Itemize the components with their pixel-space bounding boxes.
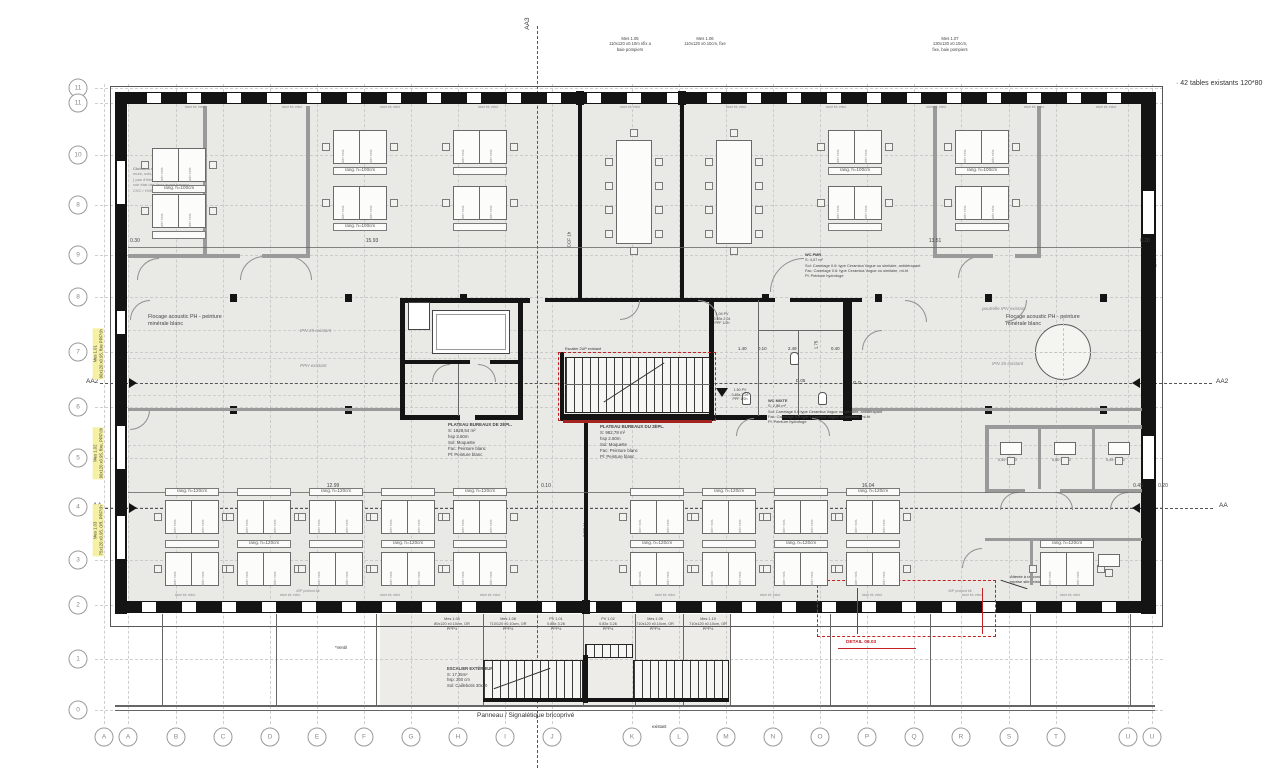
chair-icon-r3 [655,230,663,238]
room-block-wc-mixte: WC MIXTES: 2,86 m²Sol: Carrelage 0.6 typ… [768,398,882,424]
desk-label-1: table exist. [389,519,393,534]
store-label-bottom-2: store int. exist. [380,594,401,598]
chair-icon-l [322,199,330,207]
grid-bubble-col-3: C [214,728,233,747]
small-desk-chair-3 [1105,569,1113,577]
rang-label: rang. h=120cm [177,488,207,493]
desk-cluster-top-0: table exist.table exist.rang. h=100cm [333,130,387,176]
desk-label-1: table exist. [638,519,642,534]
desk-cluster-top-9: table exist.table exist. [152,194,206,240]
stair-rail [565,384,710,385]
chair-icon-l [442,199,450,207]
chair-icon-l [944,143,952,151]
room-br2-wall-m [1030,538,1033,585]
store-label-bottom-3: store int. exist. [480,594,501,598]
annex-partition-1 [276,614,277,705]
chair-icon-b [630,247,638,255]
annex-bottom-line2 [115,710,1155,711]
dim-top-1: 15.93 [366,238,379,245]
desk-label-1: table exist. [245,519,249,534]
rang-label: rang. h=100cm [164,185,194,190]
desk-label-2: table exist. [882,519,886,534]
chair-icon-l [154,513,162,521]
chair-icon-r [390,143,398,151]
rang-label: rang. h=120cm [714,488,744,493]
chair-icon-l [141,207,149,215]
desk-cluster-b2-3: table exist.table exist.rang. h=120cm [381,552,435,598]
desk-label-1: table exist. [173,519,177,534]
desk-label-1: table exist. [160,167,164,182]
store-label-bottom-4: store int. exist. [655,594,676,598]
chair-icon-r0 [655,158,663,166]
chair-icon-r [510,143,518,151]
chair-icon-l [442,565,450,573]
column-mid-0 [230,294,237,302]
desk-divider [872,500,873,534]
store-label-bottom-1: store int. exist. [280,594,301,598]
desk-cluster-top-6: table exist.table exist.rang. h=100cm [955,130,1009,176]
chair-icon-l [944,199,952,207]
elevator-shaft-box [408,302,430,330]
desk-label-1: table exist. [173,571,177,586]
desk-label-1: table exist. [461,571,465,586]
wc-partition-3 [758,330,845,331]
office-tl-wall-4 [262,254,310,258]
chair-icon-l [442,143,450,151]
wall-top-hatched [120,92,1152,104]
core-wall-v-mid [518,360,523,420]
store-label-top-9: store int. exist. [1096,106,1117,110]
grid-bubble-col-20: T [1047,728,1066,747]
grid-bubble-col-2: B [167,728,186,747]
chair-icon-l [691,513,699,521]
grid-bubble-row-6: 7 [69,343,88,362]
rang-bar [453,223,507,231]
annex-partition-11 [1130,614,1131,705]
store-label-bottom-8: store int. exist. [1060,594,1081,598]
office-tl-wall-3 [128,254,240,258]
office-tr-wall-2 [1037,106,1041,258]
ext-stair-edge [483,698,729,702]
desk-divider [656,552,657,586]
chair-icon-r [510,513,518,521]
measure-top-0: Mes 1.05110x120 x0.10m nfix abaie pompie… [609,36,651,52]
desk-divider [800,552,801,586]
desk-divider [191,552,192,586]
desk-label-2: table exist. [489,571,493,586]
chair-icon-r2 [755,206,763,214]
stair-direction-arrow [716,388,728,397]
rang-label: rang. h=100cm [840,167,870,172]
desk-cluster-top-7: table exist.table exist. [955,186,1009,232]
column-mid-5 [985,294,992,302]
desk-label-1: table exist. [341,149,345,164]
desk-divider [800,500,801,534]
desk-label-2: table exist. [345,519,349,534]
desk-label-2: table exist. [489,149,493,164]
desk-label-2: table exist. [489,519,493,534]
rang-bar [774,488,828,496]
desk-label-1: table exist. [782,519,786,534]
measure-left-2: Mes 1.0375x120 x0.95, OR, PPF½h [93,504,104,556]
desk-divider [854,186,855,220]
chair-icon-r3 [755,230,763,238]
line-2: PPF½ [434,627,470,632]
line-2: PPF½ [599,627,617,632]
rang-bar [165,540,219,548]
room-block-escalier-ext-line-3: Sol: Caillebotis 30x30 [447,683,493,689]
column-mid-1 [345,294,352,302]
chair-icon-l [817,143,825,151]
small-desk-3 [1098,554,1120,567]
desk-label-2: table exist. [345,571,349,586]
measure-core-1: 1.50 PV0.85x 3.26PPF 1/2h [732,388,749,402]
desk-label-1: table exist. [461,149,465,164]
dim-bottom-3: 0.45 [1133,483,1143,490]
column-mid-6 [1100,294,1107,302]
small-desk-chair-0 [1007,457,1015,465]
desk-label-1: table exist. [836,149,840,164]
grid-bubble-col-4: D [261,728,280,747]
chair-icon-t [730,129,738,137]
grid-bubble-row-10: 3 [69,551,88,570]
pilaster-bottom [582,600,590,614]
store-label-top-1: store int. exist. [282,106,303,110]
chair-icon-l [619,565,627,573]
rang-bar [309,540,363,548]
beam-left [128,408,400,411]
firewall-top-1 [578,104,582,300]
desk-label-2: table exist. [864,205,868,220]
measure-top-2: Mes 1.07130x130 x0.10cm,fixe, baie pompi… [932,36,967,52]
line-2: PPF½ [689,627,727,632]
small-desk-2 [1108,442,1130,455]
chair-icon-r0 [755,158,763,166]
chair-icon-l [1029,565,1037,573]
chair-icon-r [885,199,893,207]
desk-cluster-top-1: table exist.table exist. [453,130,507,176]
chair-icon-l [817,199,825,207]
desk-label-1: table exist. [461,205,465,220]
line-0: 1.50 PV [732,388,749,393]
desk-cluster-top-5: table exist.table exist. [828,186,882,232]
desk-label-2: table exist. [666,519,670,534]
measure-top-1: Mes 1.06110x120 x0.10cm, fixe [684,36,726,47]
grid-bubble-row-2: 10 [69,146,88,165]
dim-top-3: 0.20 [1140,238,1150,245]
chair-icon-l [370,565,378,573]
office-tr-wall-4 [1015,254,1041,258]
stair-red-edge [563,420,712,423]
desk-label-1: table exist. [317,571,321,586]
desk-divider [728,552,729,586]
desk-label-2: table exist. [666,571,670,586]
rang-bar [955,223,1009,231]
desk-label-1: table exist. [389,571,393,586]
ext-stair-treads-1 [483,660,583,700]
rang-label: rang. h=120cm [1052,540,1082,545]
desk-label-2: table exist. [1076,571,1080,586]
desk-label-2: table exist. [991,205,995,220]
measure-bottom-4: Mes 1.09710x120 x0.10cm, ORPPF½ [636,617,674,632]
desk-divider [335,500,336,534]
detail-0903-box [817,580,996,637]
office-tr-wall-1 [933,106,937,258]
detail-0903-underline [838,648,916,649]
chair-icon-r [510,199,518,207]
rang-bar [702,540,756,548]
grid-bubble-col-17: Q [905,728,924,747]
chair-icon-r [903,565,911,573]
window-left-2 [116,425,126,470]
grid-bubble-col-13: M [717,728,736,747]
grid-bubble-col-16: P [858,728,877,747]
chair-icon-l [154,565,162,573]
desk-divider [191,500,192,534]
store-label-bottom-7: store int. exist. [962,594,983,598]
meeting-table-2 [716,140,752,244]
store-label-top-0: store int. exist. [185,106,206,110]
meeting-table-1 [616,140,652,244]
line-2: fixe, baie pompiers [932,47,967,52]
desk-label-2: table exist. [273,571,277,586]
chair-icon-r [1012,199,1020,207]
firewall-bottom [584,420,588,601]
grid-bubble-col-15: O [811,728,830,747]
column-mid-4 [875,294,882,302]
line-2: PPF½ [636,627,674,632]
room-br-wall-m1 [1038,425,1041,489]
room-block-plateau-right: PLATEAU BUREAUX DU 2ÈPL.S: 982,78 m²hsp … [600,424,664,460]
annex-partition-0 [162,614,163,705]
store-label-bottom-0: store int. exist. [175,594,196,598]
chair-icon-l2 [605,206,613,214]
measure-bottom-0: Mes 1.0480x120 x0.10cm, ORPPF½ [434,617,470,632]
grid-bubble-col-5: E [308,728,327,747]
desk-divider [335,552,336,586]
room-block-plateau-left-line-5: Pl: Peinture blanc [448,452,512,458]
chair-icon-l [691,565,699,573]
grid-bubble-row-9: 4 [69,498,88,517]
desk-label-1: table exist. [638,571,642,586]
rang-bar [453,167,507,175]
dim-bottom-4: 0.20 [1158,483,1168,490]
grid-bubble-col-0: A [95,728,114,747]
store-label-top-4: store int. exist. [620,106,641,110]
desk-label-2: table exist. [810,571,814,586]
rang-bar [846,540,900,548]
desk-divider [872,552,873,586]
room-block-wc-mixte-line-4: Pl: Peinture hydrofuge [768,419,882,424]
desk-label-2: table exist. [188,167,192,182]
desk-label-2: table exist. [991,149,995,164]
desk-label-2: table exist. [188,213,192,228]
chair-icon-r2 [655,206,663,214]
desk-divider [479,552,480,586]
window-left-0 [116,160,126,205]
wc-partition-1 [758,300,759,416]
desk-divider [407,552,408,586]
measure-bottom-2: PV 1.010.88x 3.26PPF½ [547,617,565,632]
core-wall-v-left [400,298,405,420]
chair-icon-l [763,513,771,521]
grid-bubble-col-14: N [764,728,783,747]
window-right-0 [1142,190,1155,235]
grid-bubble-col-1: A [119,728,138,747]
chair-icon-l [226,565,234,573]
stair-treads-main [565,357,710,413]
desk-divider [178,194,179,228]
chair-icon-l3 [705,230,713,238]
chair-icon-l2 [705,206,713,214]
elevator-car-inner [436,314,506,350]
desk-label-2: table exist. [738,519,742,534]
store-label-bottom-5: store int. exist. [760,594,781,598]
chair-icon-l [442,513,450,521]
chair-icon-l1 [605,182,613,190]
rang-label: rang. h=100cm [345,223,375,228]
line-1: 110x120 x0.10cm, fixe [684,41,726,46]
wall-right [1141,92,1156,614]
measure-bottom-5: Mes 1.10710x120 x0.10cm, ORPPF½ [689,617,727,632]
desk-label-1: table exist. [710,519,714,534]
grid-bubble-col-18: R [952,728,971,747]
chair-icon-t [630,129,638,137]
grid-bubble-col-6: F [355,728,374,747]
desk-label-1: table exist. [160,213,164,228]
desk-divider [479,186,480,220]
desk-divider [479,130,480,164]
store-label-bottom-6: store int. exist. [862,594,883,598]
line-2: PPF 1/2h [714,321,731,326]
desk-label-1: table exist. [836,205,840,220]
grid-bubble-row-11: 2 [69,596,88,615]
pilaster-top-1 [678,91,686,105]
rang-label: rang. h=120cm [858,488,888,493]
desk-cluster-b2-7: table exist.table exist.rang. h=120cm [774,552,828,598]
room-block-plateau-left: PLATEAU BUREAUX DE 2ÈPL.S: 1828,54 m²hsp… [448,422,512,458]
plan-content: 0,49 x 2,200,80 x 2,200,49 x 2,200.3015.… [0,0,1280,772]
chair-icon-l [763,565,771,573]
desk-cluster-top-8: table exist.table exist.rang. h=100cm [152,148,206,194]
desk-label-1: table exist. [341,205,345,220]
chair-icon-l0 [605,158,613,166]
chair-icon-r [390,199,398,207]
grid-bubble-col-7: G [402,728,421,747]
desk-label-2: table exist. [864,149,868,164]
line-2: PPF½ [490,627,527,632]
desk-divider [407,500,408,534]
store-label-top-8: store int. exist. [1024,106,1045,110]
grid-bubble-row-5: 8 [69,288,88,307]
desk-label-2: table exist. [369,149,373,164]
window-left-3 [116,515,126,560]
elevator-wall-right [518,298,523,364]
desk-divider [479,500,480,534]
room-br-wall-top [985,425,1142,429]
store-label-top-2: store int. exist. [380,106,401,110]
room-br-wall-m2 [1092,425,1095,489]
window-right-1 [1142,435,1155,480]
desk-divider [981,130,982,164]
column-mid-3 [762,294,769,302]
chair-icon-l [370,513,378,521]
chair-icon-r [1012,143,1020,151]
ext-stair-wall [583,655,588,703]
rang-label: rang. h=100cm [345,167,375,172]
chair-icon-l0 [705,158,713,166]
chair-icon-l [619,513,627,521]
small-desk-0 [1000,442,1022,455]
room-block-wc-pmr: WC PMRS: 4,07 m²Sol: Carrelage 0.6: type… [805,252,920,278]
desk-divider [981,186,982,220]
store-label-top-6: store int. exist. [826,106,847,110]
desk-cluster-b2-4: table exist.table exist. [453,552,507,598]
desk-label-2: table exist. [273,519,277,534]
dim-top-0: 0.30 [130,238,140,245]
firewall-top-2 [680,104,684,300]
floor-plan-sheet: AA3 AA2 AA2 AA AA · 42 tables existants … [0,0,1280,772]
desk-label-1: table exist. [317,519,321,534]
desk-cluster-b2-5: table exist.table exist.rang. h=120cm [630,552,684,598]
toilet-icon-2 [790,352,799,365]
room-br-wall-l [985,425,989,493]
small-desk-chair-2 [1115,457,1123,465]
desk-cluster-b2-6: table exist.table exist. [702,552,756,598]
grid-bubble-row-12: 1 [69,650,88,669]
room-block-plateau-right-line-5: Pl: Peinture blanc [600,454,664,460]
desk-label-1: table exist. [963,205,967,220]
desk-label-1: table exist. [963,149,967,164]
rang-bar [381,488,435,496]
desk-divider [178,148,179,182]
chair-icon-l [835,565,843,573]
grid-bubble-row-1: 11 [69,94,88,113]
chair-icon-l [298,513,306,521]
desk-label-2: table exist. [417,519,421,534]
desk-cluster-b2-1: table exist.table exist.rang. h=120cm [237,552,291,598]
annex-partition-9 [930,614,931,705]
grid-bubble-col-19: S [1000,728,1019,747]
chair-icon-r [209,161,217,169]
grid-bubble-row-7: 6 [69,398,88,417]
chair-icon-l [226,513,234,521]
line-2: PPF 1/2h [732,397,749,402]
annex-partition-8 [830,614,831,705]
desk-label-1: table exist. [461,519,465,534]
beam-right [852,408,1142,411]
desk-divider [1066,552,1067,586]
desk-label-1: table exist. [710,571,714,586]
chair-icon-l [298,565,306,573]
core-wall-bottom-0 [400,415,460,420]
desk-label-2: table exist. [882,571,886,586]
desk-cluster-top-2: table exist.table exist.rang. h=100cm [333,186,387,232]
desk-label-2: table exist. [738,571,742,586]
rang-label: rang. h=120cm [321,488,351,493]
grid-bubble-col-21: U [1119,728,1138,747]
desk-label-1: table exist. [854,519,858,534]
annex-bottom-line [115,705,1155,707]
measure-core-0: 1.04 PV0.93x 2.04PPF 1/2h [714,312,731,326]
desk-label-2: table exist. [201,571,205,586]
chair-icon-r [209,207,217,215]
line-2: baie pompiers [609,47,651,52]
rang-label: rang. h=120cm [786,540,816,545]
rang-label: rang. h=120cm [465,488,495,493]
desk-cluster-b2-2: table exist.table exist. [309,552,363,598]
core-partition-1 [458,364,459,416]
